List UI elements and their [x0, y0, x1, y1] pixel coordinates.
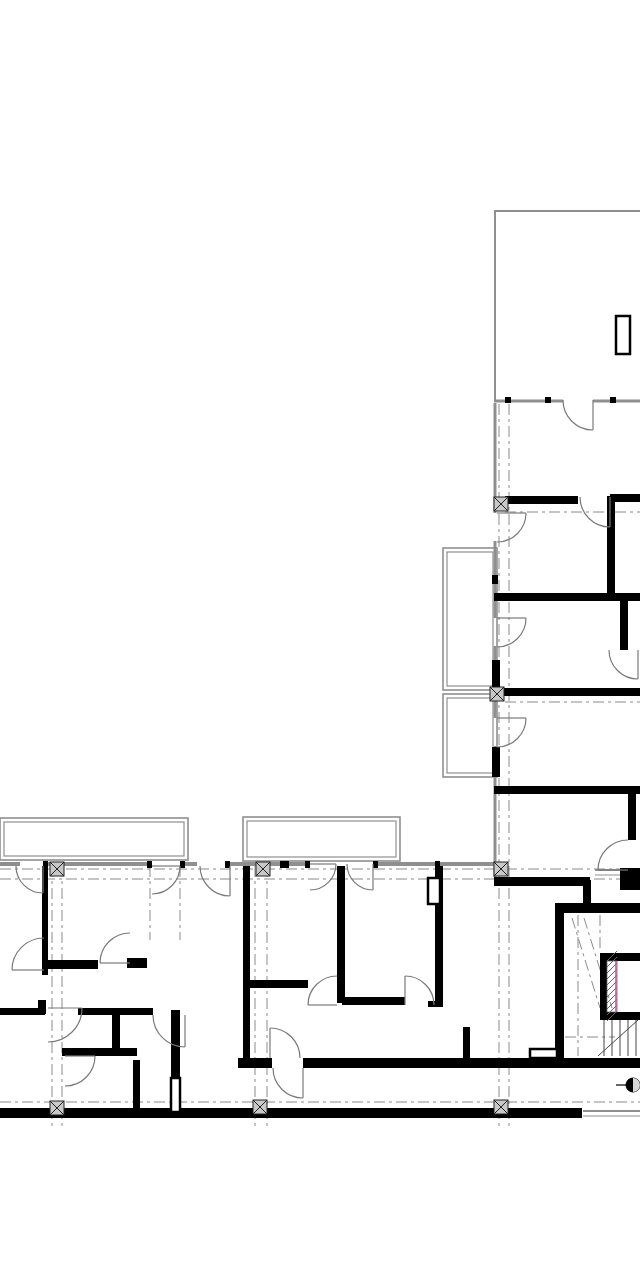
- wall-segment: [505, 397, 511, 403]
- wall-segment: [562, 903, 640, 913]
- door-arc: [48, 1008, 82, 1042]
- wall-segment: [0, 1108, 580, 1118]
- doors-layer: [12, 400, 638, 1098]
- balcony-inner-outline: [447, 552, 493, 686]
- wall-segment: [463, 1027, 470, 1063]
- door-arc: [563, 400, 593, 430]
- door-arc: [200, 866, 230, 896]
- wall-segment: [610, 397, 616, 403]
- outlined-feature: [428, 878, 440, 904]
- door-arc: [497, 718, 526, 747]
- door-arc: [347, 864, 373, 890]
- elevator-hatch-layer: [607, 951, 617, 1021]
- wall-segment: [280, 861, 289, 868]
- wall-segment: [545, 397, 551, 403]
- door-arc: [152, 866, 180, 894]
- walls-layer: [0, 397, 640, 1118]
- wall-segment: [494, 688, 640, 696]
- door-arc: [609, 650, 638, 679]
- balcony-outline: [243, 817, 400, 861]
- balcony-inner-outline: [247, 821, 396, 857]
- wall-segment: [492, 575, 498, 584]
- wall-segment: [147, 861, 152, 868]
- wall-segment: [628, 794, 636, 840]
- wall-segment: [570, 1108, 582, 1118]
- outlined-feature: [171, 1078, 180, 1112]
- wall-segment: [337, 866, 345, 1003]
- wall-segment: [45, 960, 98, 969]
- floor-plan: [0, 0, 640, 1280]
- wall-segment: [494, 786, 640, 794]
- wall-segment: [78, 1008, 153, 1015]
- wall-segment: [435, 997, 443, 1005]
- wall-segment: [38, 1000, 46, 1014]
- section-marker-layer: [616, 1078, 640, 1092]
- balcony-inner-outline: [4, 822, 184, 856]
- wall-segment: [180, 861, 185, 868]
- door-arc: [405, 976, 434, 1005]
- door-arc: [65, 1056, 95, 1086]
- wall-segment: [303, 1058, 640, 1068]
- section-marker-half: [633, 1078, 640, 1092]
- outlined-feature: [616, 316, 630, 354]
- wall-segment: [494, 877, 590, 886]
- door-arc: [270, 1028, 300, 1058]
- door-arc: [100, 933, 130, 963]
- wall-segment: [250, 980, 308, 988]
- wall-segment: [492, 747, 500, 777]
- wall-segment: [435, 861, 440, 868]
- door-arc: [273, 1068, 303, 1098]
- grid-axis-line: [584, 918, 612, 1008]
- wall-segment: [505, 496, 578, 504]
- wall-segment: [43, 861, 48, 868]
- floor-plan-page: [0, 0, 640, 1280]
- balcony-outline: [443, 694, 497, 777]
- door-arc: [310, 864, 336, 890]
- wall-segment: [607, 496, 615, 598]
- door-arc: [308, 976, 337, 1005]
- thin-walls-layer: [0, 211, 640, 1116]
- balcony-inner-outline: [447, 698, 493, 773]
- balconies-layer: [0, 548, 497, 861]
- wall-segment: [342, 997, 405, 1005]
- wall-segment: [555, 903, 564, 1068]
- wall-segment: [620, 601, 628, 650]
- wall-segment: [600, 953, 607, 1020]
- door-arc: [12, 938, 44, 970]
- wall-segment: [243, 866, 250, 1060]
- balcony-outline: [443, 548, 497, 690]
- grid-axis-line: [572, 918, 600, 1008]
- door-arc: [497, 513, 526, 542]
- wall-segment: [373, 861, 378, 868]
- wall-segment: [133, 1060, 140, 1112]
- door-arc: [497, 618, 526, 647]
- stair-treads-layer: [598, 1020, 638, 1056]
- balcony-outline: [0, 818, 188, 860]
- grid-layer: [0, 404, 640, 1130]
- wall-segment: [225, 861, 230, 868]
- door-arc: [153, 1015, 185, 1047]
- wall-segment: [305, 861, 310, 868]
- outlined-feature: [530, 1049, 557, 1058]
- door-arc: [598, 840, 628, 870]
- wall-segment: [494, 593, 640, 601]
- wall-segment: [62, 1048, 137, 1056]
- wall-segment: [620, 868, 640, 890]
